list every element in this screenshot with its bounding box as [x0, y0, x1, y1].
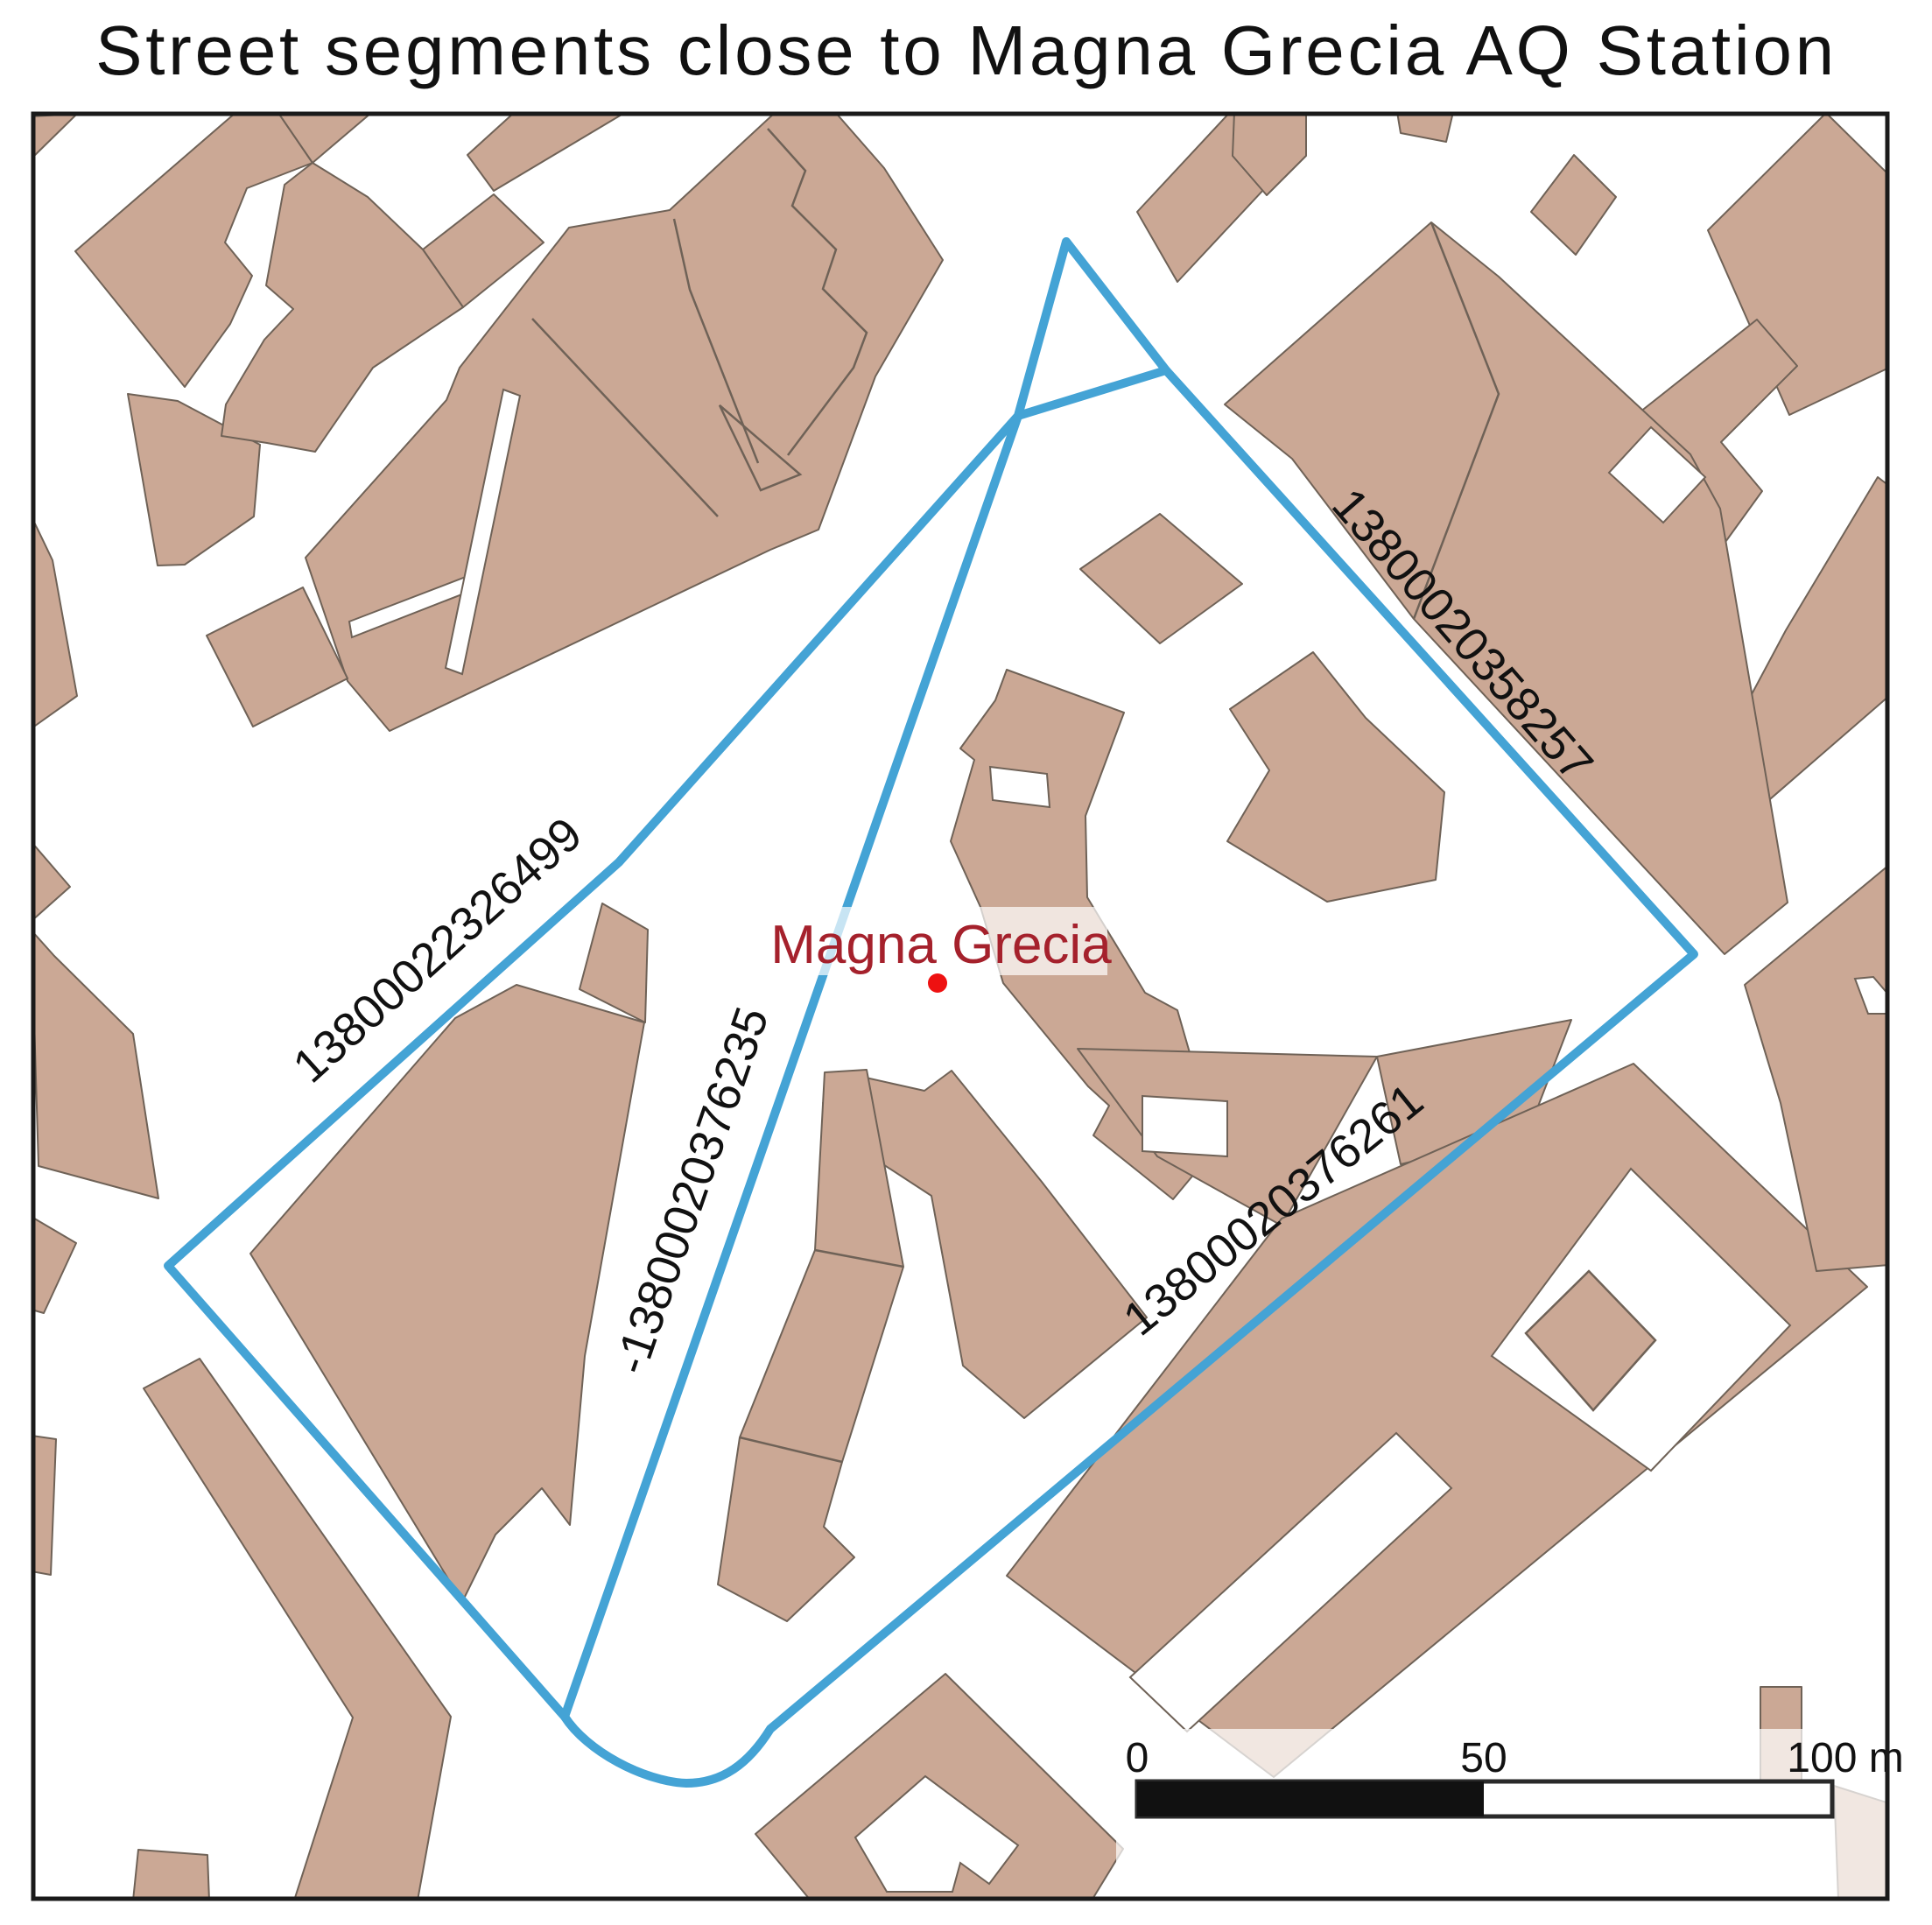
svg-text:Magna Grecia: Magna Grecia	[770, 915, 1112, 975]
svg-text:0: 0	[1126, 1735, 1149, 1781]
svg-text:Street segments close to Magna: Street segments close to Magna Grecia AQ…	[95, 11, 1837, 89]
svg-text:50: 50	[1460, 1735, 1507, 1781]
